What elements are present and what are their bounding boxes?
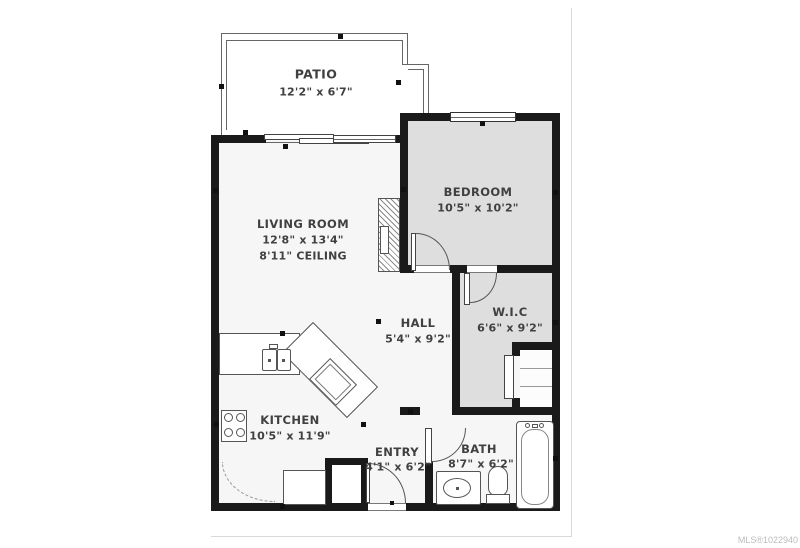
dim-marker (219, 84, 224, 89)
bath-label: BATH (461, 442, 497, 456)
entry-label: ENTRY (375, 445, 419, 459)
dim-marker (338, 34, 343, 39)
kitchen-dims: 10'5" x 11'9" (249, 430, 330, 443)
wall-bedroom-top (400, 113, 450, 121)
dim-marker (480, 121, 485, 126)
linen-closet-interior (520, 350, 552, 407)
patio-railing (226, 40, 227, 130)
dim-marker (283, 144, 288, 149)
tub-faucet-knob (525, 423, 530, 428)
patio-railing (408, 69, 423, 70)
dim-marker (396, 80, 401, 85)
floor-plan: PATIO 12'2" x 6'7" LIVING ROOM 12'8" x 1… (0, 0, 800, 548)
mls-watermark: MLS®1022940 (738, 535, 798, 545)
bathtub-inner (521, 429, 549, 505)
bedroom-window-midline (451, 117, 515, 118)
dim-marker (553, 456, 558, 461)
patio-railing (402, 64, 429, 65)
dim-marker (408, 409, 413, 414)
kitchen-counter-bottom (283, 470, 326, 505)
dim-marker (243, 130, 248, 135)
wall-closet-left (512, 398, 520, 415)
cooktop-burner (236, 413, 245, 422)
entry-dims: 4'1" x 6'2" (365, 461, 431, 474)
wic-door-opening (467, 265, 497, 273)
wall-living-top (211, 135, 266, 143)
wall-bedroom-top (516, 113, 560, 121)
closet-shelf (520, 386, 552, 387)
bedroom-dims: 10'5" x 10'2" (437, 202, 518, 215)
dim-marker (553, 190, 558, 195)
entry-door-opening (368, 503, 406, 511)
patio-railing (402, 40, 403, 64)
hall-label: HALL (401, 316, 436, 330)
plan-edge-right (571, 8, 572, 537)
wall-closet-left (512, 342, 520, 356)
living-window-midline (334, 139, 395, 140)
living-room-label: LIVING ROOM (257, 217, 349, 231)
toilet-bowl (488, 466, 508, 496)
sink-drain-dot (268, 359, 271, 362)
dim-marker (213, 188, 218, 193)
sink-faucet (269, 344, 278, 349)
dim-marker (280, 504, 285, 509)
patio-railing (226, 40, 402, 41)
cooktop-burner (224, 413, 233, 422)
dim-marker (280, 331, 285, 336)
patio-railing (428, 64, 429, 115)
patio-railing (221, 33, 408, 34)
linen-closet-door-leaf (504, 355, 514, 399)
hall-dims: 5'4" x 9'2" (385, 333, 451, 346)
wall-bedroom-bottom (450, 265, 467, 273)
wall-wic-bottom (452, 407, 560, 415)
bath-sink-drain-dot (456, 487, 459, 490)
fireplace-insert (380, 226, 389, 254)
patio-dims: 12'2" x 6'7" (279, 86, 353, 99)
patio-railing (407, 33, 408, 64)
tub-spout (532, 424, 538, 428)
cooktop-burner (224, 428, 233, 437)
patio-railing (423, 69, 424, 115)
patio-label: PATIO (295, 67, 338, 82)
closet-shelf (520, 368, 552, 369)
bath-door-leaf (425, 428, 432, 464)
wic-dims: 6'6" x 9'2" (477, 322, 543, 335)
wall-wic-left (452, 273, 460, 415)
living-room-ceiling: 8'11" CEILING (259, 250, 347, 263)
dim-marker (376, 319, 381, 324)
dim-marker (214, 422, 219, 427)
living-room-dims: 12'8" x 13'4" (262, 234, 343, 247)
bedroom-label: BEDROOM (444, 185, 513, 199)
wic-label: W.I.C (492, 305, 527, 319)
entry-closet-interior (332, 465, 361, 503)
wall-bedroom-bottom (497, 265, 560, 273)
sink-drain-dot (282, 359, 285, 362)
bath-dims: 8'7" x 6'2" (448, 458, 514, 471)
entry-door-hinge-dot (390, 501, 394, 505)
cooktop-burner (236, 428, 245, 437)
dim-marker (553, 320, 558, 325)
plan-edge-bottom (211, 536, 572, 537)
dim-marker (361, 422, 366, 427)
kitchen-label: KITCHEN (260, 413, 319, 427)
tub-faucet-knob (539, 423, 544, 428)
toilet-tank (486, 494, 510, 504)
wall-bedroom-left (400, 113, 408, 273)
dim-marker (401, 187, 406, 192)
